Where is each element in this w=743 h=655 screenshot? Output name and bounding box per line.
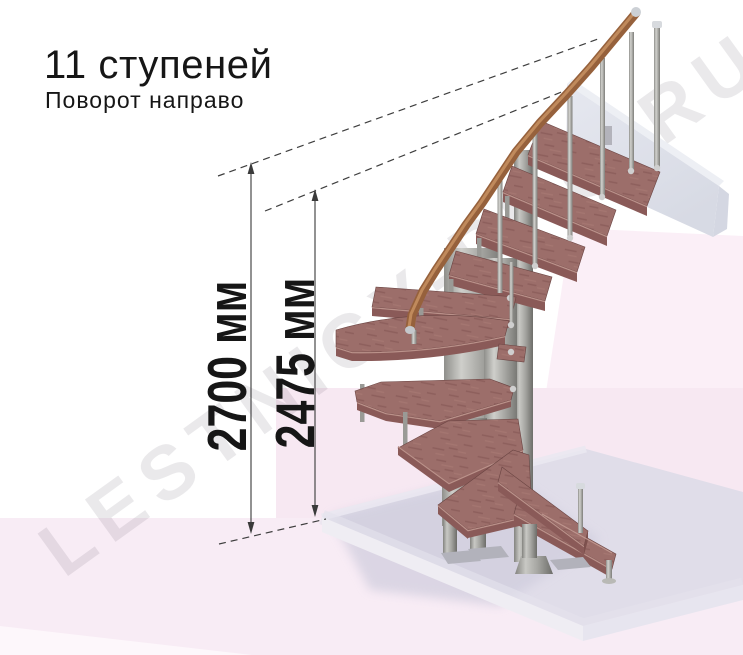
svg-text:11 ступеней: 11 ступеней <box>44 43 273 87</box>
svg-text:Поворот направо: Поворот направо <box>45 87 244 113</box>
svg-text:2475 мм: 2475 мм <box>265 278 326 449</box>
svg-text:2700 мм: 2700 мм <box>197 281 258 452</box>
